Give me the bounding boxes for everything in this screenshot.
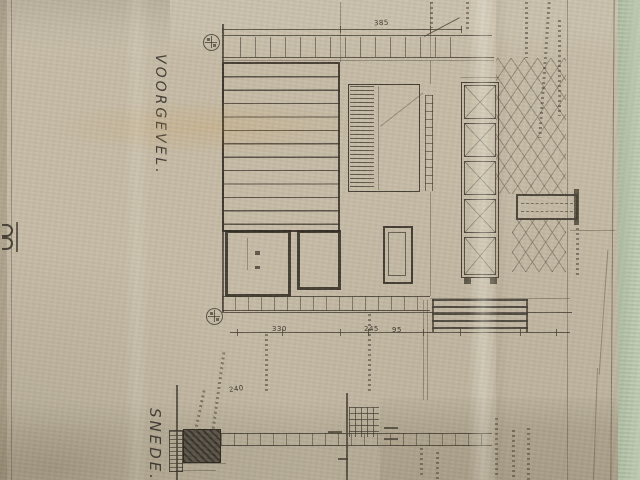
foundation-footing: [183, 429, 221, 463]
paper-edge-crease: [599, 250, 609, 375]
axis-marker: [206, 308, 223, 325]
parapet-line: [222, 57, 494, 58]
handwritten-note-line: [368, 314, 371, 394]
crosshatch-area: [512, 220, 566, 272]
dim-label: 95: [392, 326, 402, 334]
section-mark: [384, 427, 398, 429]
x-pane: [464, 161, 496, 195]
dim-label: 245: [364, 325, 379, 333]
handwritten-note-line: [495, 418, 498, 478]
sheet-border-line: [610, 0, 614, 480]
corner-shadow: [0, 0, 170, 52]
dim-label: 240: [229, 384, 245, 394]
plinth-band: [222, 296, 430, 311]
label-snede: SNEDE.: [146, 408, 164, 480]
blueprint-photo: VOORGEVEL. SNEDE. 385: [0, 0, 640, 480]
section-mark: [338, 458, 348, 460]
handwritten-note-line: [525, 2, 528, 58]
dim-tick: [556, 329, 557, 336]
axis-marker-digit: [213, 44, 216, 47]
window-hardware-mark: [255, 251, 260, 255]
axis-marker-cross: [214, 310, 215, 322]
extension-line: [430, 192, 431, 296]
dim-tick: [520, 329, 521, 336]
crosshatch-area: [496, 58, 566, 194]
x-pane: [464, 199, 496, 233]
handwritten-note-line: [265, 334, 268, 392]
strip-foot: [490, 278, 497, 284]
railing-posts: [240, 37, 462, 57]
handwritten-note-line: [420, 448, 423, 478]
handwritten-note-line: [430, 2, 433, 28]
section-hatch: [350, 86, 374, 190]
handwritten-note-line: [576, 228, 579, 276]
window-mullion: [247, 238, 248, 270]
handwritten-note-line: [193, 390, 205, 434]
axis-marker-digit: [216, 318, 219, 321]
stairs-grate: [432, 299, 528, 332]
beam-end-bar: [574, 189, 579, 225]
dim-tick: [340, 329, 341, 336]
dim-label: 330: [272, 325, 287, 333]
dim-label-top: 385: [374, 19, 389, 28]
table-surface: [618, 0, 640, 480]
x-pane: [464, 85, 496, 119]
extension-line: [423, 300, 424, 400]
section-grid-detail: [349, 407, 379, 437]
handwritten-note-line: [512, 430, 515, 478]
window-frame: [297, 230, 341, 290]
section-mark: [384, 438, 398, 440]
axis-marker: [203, 34, 220, 51]
handwritten-note-line: [212, 352, 226, 430]
dimension-ladder: [425, 95, 433, 191]
small-window-inner: [388, 232, 406, 276]
dim-tick: [461, 26, 462, 33]
axis-marker-cross: [211, 36, 212, 48]
dim-tick: [460, 329, 461, 336]
sheet-margin-line: [567, 0, 568, 480]
extension-line: [430, 60, 431, 84]
section-line: [176, 463, 226, 464]
stairs-end: [432, 299, 434, 332]
section-post-line: [346, 393, 348, 480]
parapet-line: [222, 60, 494, 61]
extension-line: [427, 300, 428, 400]
handwritten-note-line: [466, 2, 469, 30]
axis-marker-digit: [210, 312, 213, 315]
beam-dashed-line: [521, 203, 573, 204]
x-pane: [464, 237, 496, 275]
wall-section-ladder: [169, 430, 183, 472]
beam-detail: [516, 194, 578, 220]
strip-foot: [464, 278, 471, 284]
section-line: [176, 470, 216, 471]
strip-cap-line: [461, 77, 499, 78]
clipped-level-mark-line: [16, 222, 18, 252]
label-voorgevel: VOORGEVEL.: [152, 54, 168, 176]
handwritten-note-line: [436, 452, 439, 480]
slatted-panel: [222, 62, 340, 232]
section-mark: [328, 431, 342, 433]
paper-edge-crease: [593, 368, 598, 480]
dimension-line-top: [222, 29, 462, 30]
dim-tick: [237, 329, 238, 336]
x-pane: [464, 123, 496, 157]
parapet-line: [222, 35, 492, 36]
stairs-end: [526, 299, 528, 332]
handwritten-note-line: [558, 20, 561, 116]
beam-dashed-line: [521, 211, 573, 212]
window-hardware-mark: [255, 266, 260, 269]
window-frame: [225, 230, 291, 297]
axis-marker-digit: [207, 38, 210, 41]
handwritten-note-line: [527, 428, 530, 480]
section-inner-line: [378, 86, 379, 190]
